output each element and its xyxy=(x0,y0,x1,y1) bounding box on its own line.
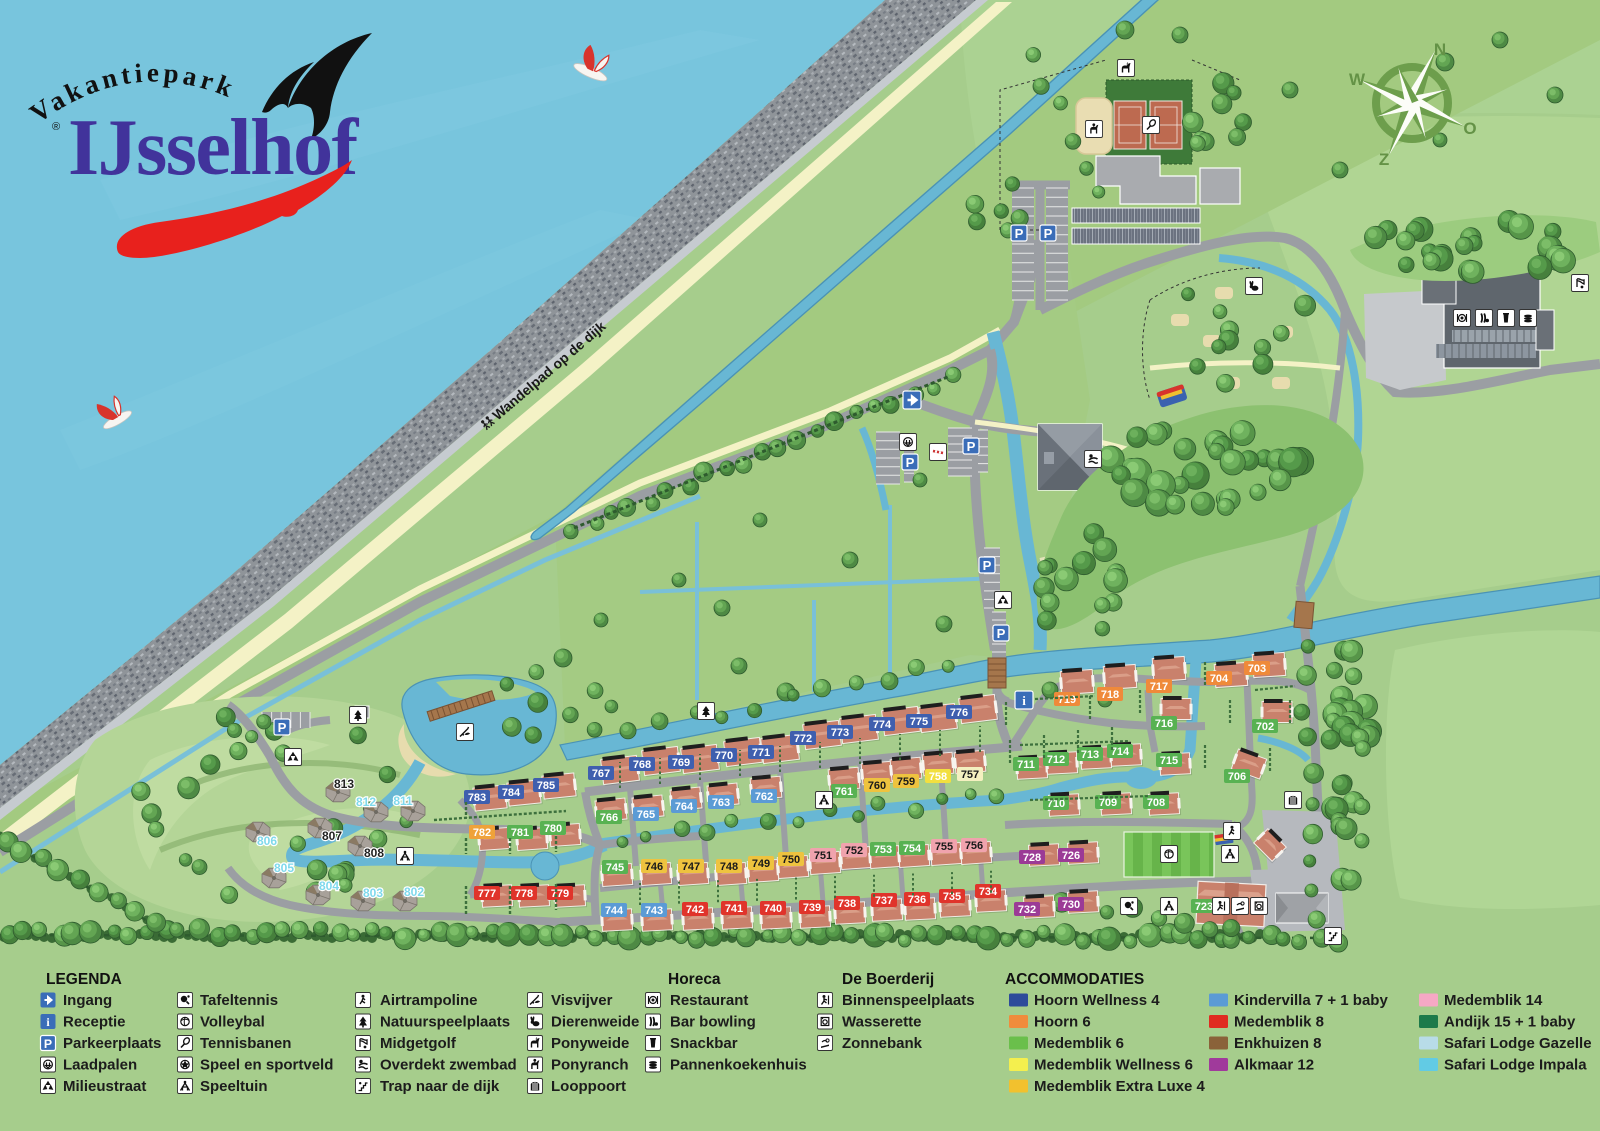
svg-text:Medemblik 14: Medemblik 14 xyxy=(1444,992,1543,1009)
svg-text:Overdekt zwembad: Overdekt zwembad xyxy=(380,1057,517,1074)
svg-text:736: 736 xyxy=(908,894,926,906)
svg-text:776: 776 xyxy=(950,707,968,719)
svg-text:751: 751 xyxy=(814,850,832,862)
svg-text:762: 762 xyxy=(755,791,773,803)
svg-text:Binnenspeelplaats: Binnenspeelplaats xyxy=(842,992,975,1009)
svg-text:Bar bowling: Bar bowling xyxy=(670,1014,756,1031)
svg-text:749: 749 xyxy=(752,858,770,870)
svg-text:752: 752 xyxy=(845,845,863,857)
svg-text:Laadpalen: Laadpalen xyxy=(63,1057,137,1074)
svg-text:769: 769 xyxy=(672,757,690,769)
svg-text:805: 805 xyxy=(274,861,294,875)
svg-text:742: 742 xyxy=(686,904,704,916)
svg-text:P: P xyxy=(997,626,1006,641)
svg-text:P: P xyxy=(1015,226,1024,241)
svg-text:782: 782 xyxy=(473,827,491,839)
svg-text:Pannenkoekenhuis: Pannenkoekenhuis xyxy=(670,1057,807,1074)
svg-text:Receptie: Receptie xyxy=(63,1014,126,1031)
svg-text:Airtrampoline: Airtrampoline xyxy=(380,992,478,1009)
svg-text:745: 745 xyxy=(606,862,624,874)
svg-text:Zonnebank: Zonnebank xyxy=(842,1035,923,1052)
svg-text:753: 753 xyxy=(874,844,892,856)
svg-text:Tennisbanen: Tennisbanen xyxy=(200,1035,291,1052)
svg-text:Milieustraat: Milieustraat xyxy=(63,1078,146,1095)
svg-text:772: 772 xyxy=(794,733,812,745)
svg-text:702: 702 xyxy=(1256,721,1274,733)
svg-text:723: 723 xyxy=(1195,901,1213,913)
svg-text:Restaurant: Restaurant xyxy=(670,992,748,1009)
svg-text:766: 766 xyxy=(600,812,618,824)
svg-text:Midgetgolf: Midgetgolf xyxy=(380,1035,457,1052)
svg-text:771: 771 xyxy=(752,747,770,759)
svg-text:738: 738 xyxy=(838,898,856,910)
svg-text:808: 808 xyxy=(364,846,384,860)
svg-text:770: 770 xyxy=(715,750,733,762)
svg-text:778: 778 xyxy=(515,888,533,900)
svg-text:813: 813 xyxy=(334,777,354,791)
svg-text:802: 802 xyxy=(404,885,424,899)
svg-text:Trap naar de dijk: Trap naar de dijk xyxy=(380,1078,500,1095)
svg-text:Hoorn 6: Hoorn 6 xyxy=(1034,1014,1091,1031)
svg-text:754: 754 xyxy=(903,843,922,855)
svg-text:747: 747 xyxy=(682,861,700,873)
svg-text:740: 740 xyxy=(764,903,782,915)
svg-text:744: 744 xyxy=(605,905,624,917)
svg-text:804: 804 xyxy=(319,879,339,893)
svg-text:Medemblik Extra Luxe 4: Medemblik Extra Luxe 4 xyxy=(1034,1078,1206,1095)
svg-text:759: 759 xyxy=(897,776,915,788)
svg-text:Enkhuizen 8: Enkhuizen 8 xyxy=(1234,1035,1322,1052)
svg-text:716: 716 xyxy=(1155,718,1173,730)
svg-text:709: 709 xyxy=(1099,797,1117,809)
svg-text:768: 768 xyxy=(633,759,651,771)
svg-text:718: 718 xyxy=(1101,689,1119,701)
svg-text:703: 703 xyxy=(1248,663,1266,675)
svg-text:Hoorn Wellness 4: Hoorn Wellness 4 xyxy=(1034,992,1160,1009)
svg-text:761: 761 xyxy=(835,786,853,798)
svg-text:712: 712 xyxy=(1047,754,1065,766)
svg-text:P: P xyxy=(278,720,287,735)
svg-text:Safari Lodge Impala: Safari Lodge Impala xyxy=(1444,1057,1587,1074)
svg-text:775: 775 xyxy=(910,716,928,728)
svg-text:Visvijver: Visvijver xyxy=(551,992,613,1009)
svg-text:Speel en sportveld: Speel en sportveld xyxy=(200,1057,333,1074)
svg-text:764: 764 xyxy=(675,801,694,813)
svg-text:765: 765 xyxy=(637,809,655,821)
svg-text:763: 763 xyxy=(712,797,730,809)
svg-text:P: P xyxy=(906,455,915,470)
svg-text:Kindervilla 7 + 1 baby: Kindervilla 7 + 1 baby xyxy=(1234,992,1388,1009)
svg-text:Volleybal: Volleybal xyxy=(200,1014,265,1031)
svg-text:ACCOMMODATIES: ACCOMMODATIES xyxy=(1005,971,1144,988)
svg-text:714: 714 xyxy=(1111,746,1130,758)
svg-text:781: 781 xyxy=(511,827,529,839)
svg-text:Horeca: Horeca xyxy=(668,971,721,988)
svg-text:767: 767 xyxy=(592,768,610,780)
svg-text:Ingang: Ingang xyxy=(63,992,112,1009)
svg-text:N: N xyxy=(1434,40,1446,59)
svg-text:Medemblik 8: Medemblik 8 xyxy=(1234,1014,1324,1031)
svg-text:P: P xyxy=(1044,226,1053,241)
svg-text:715: 715 xyxy=(1160,755,1178,767)
svg-text:P: P xyxy=(44,1037,52,1051)
svg-text:O: O xyxy=(1463,119,1476,138)
svg-text:Parkeerplaats: Parkeerplaats xyxy=(63,1035,161,1052)
svg-text:812: 812 xyxy=(356,795,376,809)
svg-text:De Boerderij: De Boerderij xyxy=(842,971,934,988)
svg-text:Tafeltennis: Tafeltennis xyxy=(200,992,278,1009)
svg-text:708: 708 xyxy=(1147,797,1165,809)
svg-text:758: 758 xyxy=(929,771,947,783)
svg-text:746: 746 xyxy=(645,861,663,873)
svg-text:Andijk 15 + 1 baby: Andijk 15 + 1 baby xyxy=(1444,1014,1576,1031)
svg-text:811: 811 xyxy=(393,794,413,808)
svg-text:777: 777 xyxy=(478,888,496,900)
svg-text:®: ® xyxy=(52,121,60,133)
svg-text:Snackbar: Snackbar xyxy=(670,1035,738,1052)
svg-text:726: 726 xyxy=(1062,850,1080,862)
svg-text:Natuurspeelplaats: Natuurspeelplaats xyxy=(380,1014,510,1031)
svg-text:806: 806 xyxy=(257,834,277,848)
svg-text:807: 807 xyxy=(322,829,342,843)
svg-text:780: 780 xyxy=(544,823,562,835)
svg-text:706: 706 xyxy=(1228,771,1246,783)
svg-text:717: 717 xyxy=(1150,681,1168,693)
svg-text:Dierenweide: Dierenweide xyxy=(551,1014,639,1031)
svg-text:711: 711 xyxy=(1017,759,1035,771)
svg-text:Looppoort: Looppoort xyxy=(551,1078,626,1095)
svg-text:734: 734 xyxy=(979,886,998,898)
svg-text:Ponyranch: Ponyranch xyxy=(551,1057,629,1074)
svg-text:Medemblik Wellness 6: Medemblik Wellness 6 xyxy=(1034,1057,1193,1074)
svg-text:750: 750 xyxy=(782,854,800,866)
svg-text:Ponyweide: Ponyweide xyxy=(551,1035,629,1052)
svg-text:774: 774 xyxy=(873,719,892,731)
svg-text:P: P xyxy=(967,439,976,454)
svg-text:Safari Lodge Gazelle: Safari Lodge Gazelle xyxy=(1444,1035,1592,1052)
svg-text:704: 704 xyxy=(1210,673,1229,685)
svg-text:730: 730 xyxy=(1062,899,1080,911)
svg-text:760: 760 xyxy=(868,780,886,792)
svg-text:728: 728 xyxy=(1023,852,1041,864)
svg-text:737: 737 xyxy=(875,895,893,907)
svg-text:803: 803 xyxy=(363,886,383,900)
svg-text:785: 785 xyxy=(537,780,555,792)
svg-text:i: i xyxy=(1022,693,1026,708)
svg-text:732: 732 xyxy=(1018,904,1036,916)
svg-text:756: 756 xyxy=(965,840,983,852)
svg-text:Speeltuin: Speeltuin xyxy=(200,1078,268,1095)
svg-text:W: W xyxy=(1349,70,1366,89)
svg-text:784: 784 xyxy=(502,787,521,799)
svg-text:Wasserette: Wasserette xyxy=(842,1014,921,1031)
svg-text:748: 748 xyxy=(720,861,738,873)
svg-text:741: 741 xyxy=(725,903,743,915)
svg-text:755: 755 xyxy=(935,841,953,853)
svg-text:779: 779 xyxy=(551,888,569,900)
svg-text:713: 713 xyxy=(1081,749,1099,761)
svg-text:719: 719 xyxy=(1058,694,1076,706)
svg-text:LEGENDA: LEGENDA xyxy=(46,971,122,988)
svg-text:Alkmaar 12: Alkmaar 12 xyxy=(1234,1057,1314,1074)
svg-text:P: P xyxy=(983,558,992,573)
svg-text:Medemblik 6: Medemblik 6 xyxy=(1034,1035,1124,1052)
svg-text:773: 773 xyxy=(831,727,849,739)
svg-text:783: 783 xyxy=(468,792,486,804)
svg-text:739: 739 xyxy=(803,902,821,914)
svg-text:743: 743 xyxy=(645,905,663,917)
svg-text:757: 757 xyxy=(961,769,979,781)
svg-text:IJsselhof: IJsselhof xyxy=(68,104,360,192)
svg-text:Z: Z xyxy=(1379,150,1389,169)
